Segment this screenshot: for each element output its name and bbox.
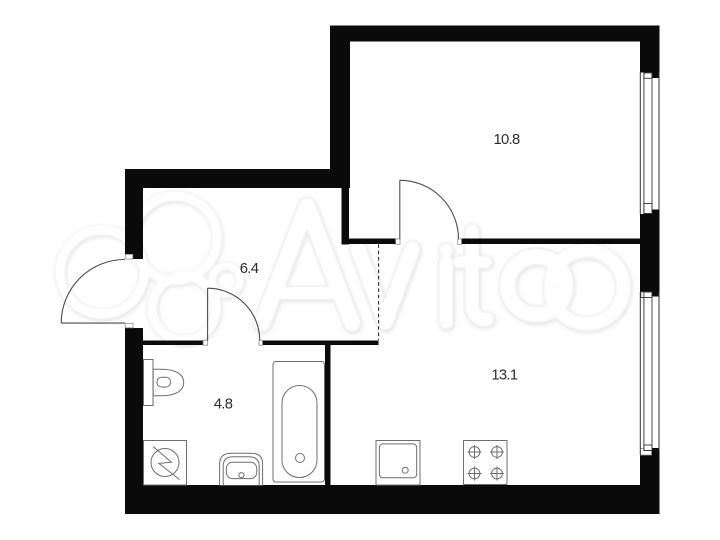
svg-text:4.8: 4.8 bbox=[214, 396, 233, 412]
svg-text:10.8: 10.8 bbox=[494, 132, 520, 148]
svg-text:13.1: 13.1 bbox=[491, 367, 517, 383]
svg-text:6.4: 6.4 bbox=[240, 261, 259, 277]
